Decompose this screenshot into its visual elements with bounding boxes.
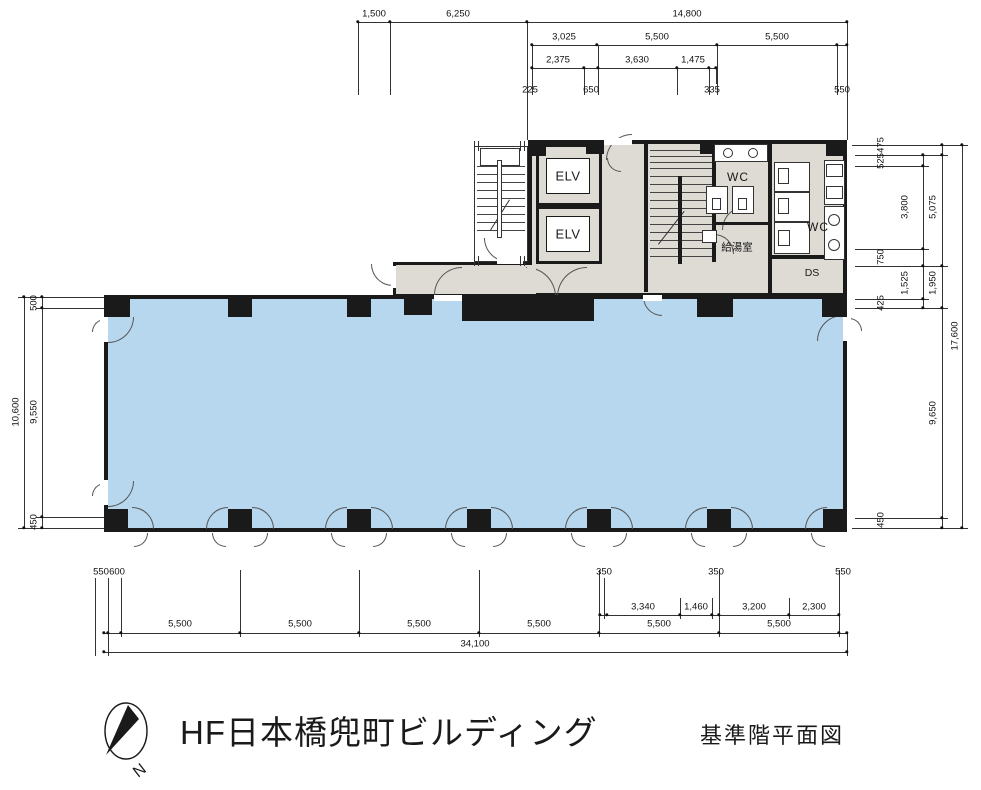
dimension-tick — [357, 631, 360, 634]
dimension-line — [855, 155, 948, 156]
fixture — [826, 164, 843, 177]
dimension-tick — [678, 613, 681, 616]
dimension-line — [527, 22, 528, 140]
dimension-label: 475 — [876, 137, 887, 153]
dimension-tick — [530, 66, 533, 69]
dimension-tick — [940, 264, 943, 267]
dimension-tick — [940, 306, 943, 309]
dimension-tick — [597, 631, 600, 634]
dimension-tick — [102, 650, 105, 653]
wall — [347, 295, 371, 317]
dimension-line — [524, 141, 525, 151]
dimension-label: 1,950 — [928, 271, 939, 295]
elevator-1-label: ELV — [555, 169, 580, 184]
dimension-label: 17,600 — [950, 321, 961, 350]
dimension-line — [478, 141, 479, 151]
drawing-title: 基準階平面図 — [700, 718, 844, 750]
dimension-label: 5,500 — [407, 619, 431, 630]
dimension-line — [852, 145, 968, 146]
dimension-tick — [921, 264, 924, 267]
dimension-line — [855, 299, 929, 300]
dimension-tick — [960, 143, 963, 146]
dimension-line — [104, 652, 847, 653]
dimension-tick — [22, 295, 25, 298]
door-swing-arc — [371, 264, 393, 286]
pipe-space-label: PS — [501, 303, 515, 315]
dimension-label: 500 — [29, 295, 40, 311]
wall-opening — [643, 295, 662, 301]
dimension-line — [108, 578, 109, 656]
fixture — [738, 198, 747, 210]
dimension-line — [719, 570, 720, 637]
dimension-tick — [582, 66, 585, 69]
dimension-tick — [845, 650, 848, 653]
dimension-label: 350 — [708, 567, 724, 578]
dimension-tick — [596, 66, 599, 69]
door-swing-arc — [373, 533, 387, 547]
dimension-label: 2,300 — [802, 602, 826, 613]
fixture — [702, 230, 717, 243]
dimension-tick — [717, 613, 720, 616]
wall — [768, 140, 772, 297]
dimension-tick — [921, 153, 924, 156]
dimension-line — [42, 297, 43, 528]
dimension-label: 335 — [704, 85, 720, 96]
title-block: N HF日本橋兜町ビルディング 基準階平面図 — [0, 690, 981, 790]
stair-tread — [650, 168, 712, 169]
dimension-label: 5,500 — [288, 619, 312, 630]
corridor — [393, 262, 532, 297]
stair-tread — [650, 162, 712, 163]
dimension-tick — [238, 631, 241, 634]
dimension-tick — [605, 613, 608, 616]
dimension-line — [855, 249, 929, 250]
dimension-label: 1,500 — [362, 9, 386, 20]
sink-fixture — [828, 239, 840, 251]
dimension-tick — [119, 631, 122, 634]
fixture — [712, 198, 721, 210]
dimension-tick — [356, 20, 359, 23]
floor-plan-sheet: ELV ELV WC WC 給湯室 DS PS EPS 1,5006,25014… — [0, 0, 981, 790]
dimension-tick — [707, 66, 710, 69]
elevator-2-label: ELV — [555, 227, 580, 242]
dimension-label: 3,025 — [552, 32, 576, 43]
wall — [678, 176, 682, 264]
dimension-line — [474, 141, 475, 151]
dimension-label: 5,500 — [767, 619, 791, 630]
dimension-label: 350 — [596, 567, 612, 578]
dimension-tick — [940, 143, 943, 146]
dimension-line — [520, 141, 521, 151]
wall-opening — [434, 295, 462, 301]
dimension-tick — [921, 247, 924, 250]
dimension-tick — [598, 613, 601, 616]
wall-opening — [100, 480, 108, 505]
dimension-line — [524, 256, 525, 266]
wall-opening — [391, 266, 396, 288]
dimension-tick — [940, 526, 943, 529]
dimension-line — [520, 256, 521, 266]
dimension-label: 5,500 — [527, 619, 551, 630]
sink-fixture — [748, 148, 758, 158]
dimension-label: 1,525 — [900, 271, 911, 295]
dimension-line — [359, 570, 360, 637]
dimension-tick — [40, 295, 43, 298]
dimension-tick — [921, 297, 924, 300]
dimension-label: 525 — [876, 153, 887, 169]
door-swing-arc — [613, 533, 627, 547]
dimension-tick — [960, 526, 963, 529]
wall — [228, 295, 252, 317]
wall — [587, 509, 611, 532]
dimension-tick — [717, 631, 720, 634]
dimension-label: 550 — [835, 567, 851, 578]
dimension-tick — [787, 613, 790, 616]
dimension-line — [532, 45, 847, 46]
dimension-label: 1,475 — [681, 55, 705, 66]
dimension-label: 3,800 — [900, 195, 911, 219]
door-swing-arc — [571, 533, 585, 547]
dimension-line — [855, 308, 948, 309]
dimension-line — [36, 517, 104, 518]
dimension-label: 450 — [876, 512, 887, 528]
wall — [104, 509, 128, 532]
wall — [347, 509, 371, 532]
door-swing-arc — [254, 533, 268, 547]
dimension-tick — [940, 516, 943, 519]
dimension-label: 600 — [109, 567, 125, 578]
dimension-tick — [40, 306, 43, 309]
wall — [228, 509, 252, 532]
fixture — [826, 186, 843, 199]
dimension-line — [474, 256, 475, 266]
dimension-label: 5,500 — [168, 619, 192, 630]
north-label: N — [130, 761, 150, 782]
wall — [826, 140, 847, 156]
kitchen-label: 給湯室 — [721, 240, 753, 255]
dimension-label: 34,100 — [460, 639, 489, 650]
dimension-line — [479, 570, 480, 637]
wall — [528, 140, 546, 156]
sink-fixture — [828, 214, 840, 226]
dimension-label: 3,340 — [631, 602, 655, 613]
wall-opening — [843, 316, 851, 341]
wall — [644, 144, 648, 292]
wall — [697, 295, 733, 317]
door-swing-arc — [451, 533, 465, 547]
dimension-tick — [525, 20, 528, 23]
fixture — [778, 230, 790, 246]
dimension-line — [358, 22, 359, 95]
fixture — [778, 168, 789, 184]
dimension-tick — [837, 631, 840, 634]
dimension-line — [390, 22, 391, 95]
wc-right-label: WC — [807, 220, 829, 234]
dimension-tick — [845, 20, 848, 23]
dimension-line — [855, 166, 929, 167]
dimension-label: 9,650 — [928, 401, 939, 425]
fixture — [497, 160, 502, 238]
wall — [822, 295, 847, 317]
dimension-line — [855, 266, 948, 267]
wall — [104, 295, 130, 317]
dimension-tick — [106, 631, 109, 634]
door-swing-arc — [331, 533, 345, 547]
wall — [716, 222, 768, 225]
dimension-label: 10,600 — [11, 397, 22, 426]
dimension-line — [839, 570, 840, 637]
door-swing-arc — [212, 533, 226, 547]
dimension-label: 750 — [876, 249, 887, 265]
wall — [462, 295, 594, 321]
dimension-tick — [675, 66, 678, 69]
wall — [823, 509, 847, 532]
dimension-tick — [837, 613, 840, 616]
dimension-tick — [477, 631, 480, 634]
building-name: HF日本橋兜町ビルディング — [180, 706, 598, 754]
dimension-line — [716, 68, 717, 84]
dimension-label: 550 — [93, 567, 109, 578]
door-swing-arc — [811, 533, 825, 547]
wall — [467, 509, 491, 532]
dimension-label: 5,500 — [765, 32, 789, 43]
stair-tread — [650, 156, 712, 157]
door-swing-arc — [733, 533, 747, 547]
dimension-tick — [22, 526, 25, 529]
dimension-label: 450 — [29, 514, 40, 530]
dimension-line — [847, 22, 848, 140]
dimension-label: 3,200 — [742, 602, 766, 613]
dimension-line — [121, 578, 122, 637]
tenant-room — [104, 295, 847, 532]
dimension-tick — [102, 631, 105, 634]
dimension-tick — [388, 20, 391, 23]
floor-patch — [527, 266, 536, 294]
dimension-line — [599, 570, 600, 637]
door-swing-arc — [691, 533, 705, 547]
dimension-line — [36, 308, 104, 309]
dimension-tick — [845, 43, 848, 46]
dimension-line — [677, 68, 678, 95]
sink-fixture — [723, 148, 733, 158]
dimension-label: 2,375 — [546, 55, 570, 66]
dimension-tick — [40, 515, 43, 518]
dimension-label: 550 — [834, 85, 850, 96]
dimension-tick — [710, 613, 713, 616]
dimension-tick — [715, 43, 718, 46]
dimension-label: 3,630 — [625, 55, 649, 66]
door-swing-arc — [493, 533, 507, 547]
dimension-line — [962, 145, 963, 528]
wall — [586, 140, 604, 154]
dimension-line — [855, 518, 948, 519]
wall-opening — [100, 317, 108, 342]
fixture — [778, 198, 789, 214]
dimension-line — [240, 570, 241, 637]
dimension-line — [95, 578, 96, 656]
dimension-tick — [845, 631, 848, 634]
dimension-tick — [940, 153, 943, 156]
dimension-line — [24, 297, 25, 528]
dimension-line — [942, 145, 943, 528]
dimension-label: 5,500 — [645, 32, 669, 43]
wall — [707, 509, 731, 532]
dimension-label: 14,800 — [672, 9, 701, 20]
door-swing-arc — [134, 533, 148, 547]
electrical-pipe-space-label: EPS — [550, 303, 571, 315]
dimension-label: 5,500 — [647, 619, 671, 630]
dimension-line — [358, 22, 847, 23]
dimension-label: 6,250 — [446, 9, 470, 20]
wc-left-label: WC — [727, 170, 749, 184]
floor-plan-drawing: ELV ELV WC WC 給湯室 DS PS EPS 1,5006,25014… — [0, 0, 981, 670]
dimension-label: 425 — [876, 295, 887, 311]
dimension-label: 225 — [522, 85, 538, 96]
dimension-tick — [40, 526, 43, 529]
dimension-label: 5,075 — [928, 195, 939, 219]
dimension-tick — [835, 43, 838, 46]
dimension-tick — [530, 43, 533, 46]
wall-opening — [604, 138, 632, 145]
duct-space-label: DS — [805, 267, 820, 279]
dimension-line — [104, 633, 847, 634]
dimension-tick — [921, 306, 924, 309]
dimension-label: 650 — [583, 85, 599, 96]
dimension-label: 1,460 — [684, 602, 708, 613]
dimension-label: 9,550 — [29, 400, 40, 424]
dimension-line — [532, 68, 716, 69]
north-arrow-icon: N — [98, 698, 162, 790]
dimension-line — [852, 528, 968, 529]
dimension-line — [478, 256, 479, 266]
wall — [404, 295, 432, 315]
dimension-line — [923, 155, 924, 308]
dimension-tick — [921, 164, 924, 167]
